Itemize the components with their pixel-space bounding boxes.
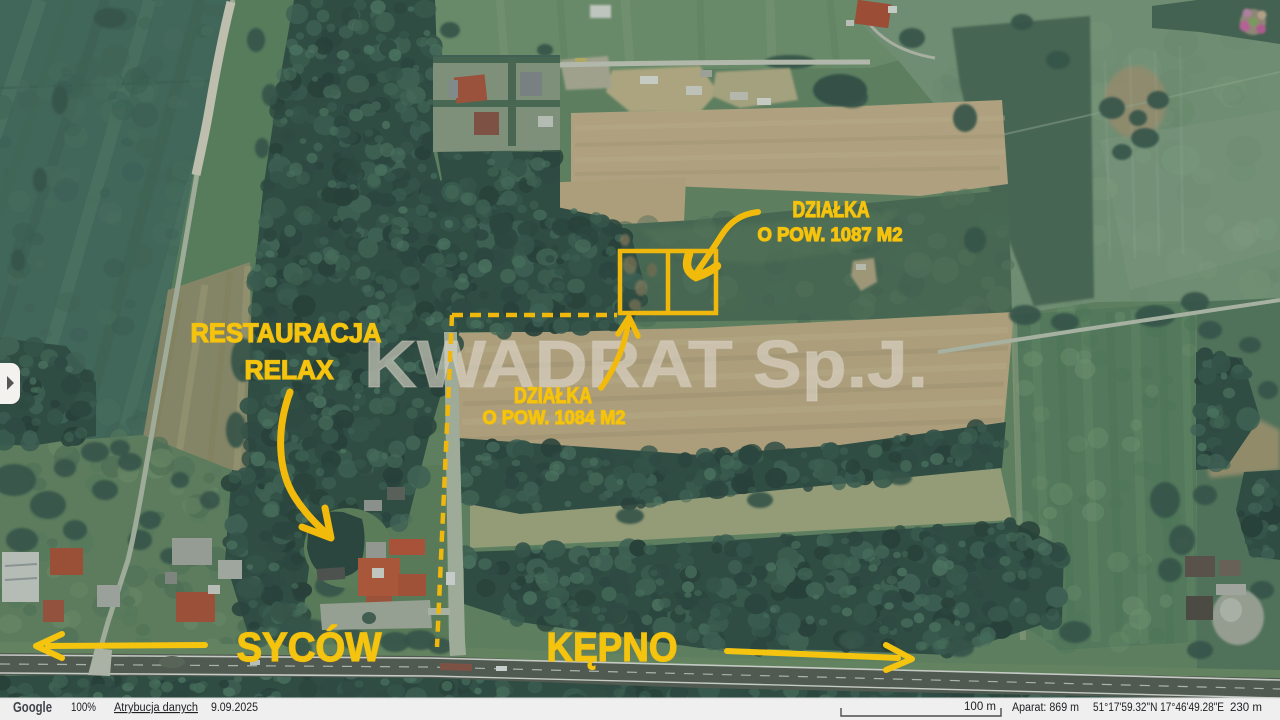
svg-text:RESTAURACJA: RESTAURACJA	[191, 318, 382, 348]
svg-text:O POW. 1084 M2: O POW. 1084 M2	[483, 407, 626, 429]
svg-text:DZIAŁKA: DZIAŁKA	[793, 197, 870, 222]
svg-text:Google: Google	[13, 700, 52, 716]
svg-text:9.09.2025: 9.09.2025	[211, 702, 258, 714]
svg-text:DZIAŁKA: DZIAŁKA	[514, 383, 592, 408]
svg-text:O POW. 1087 M2: O POW. 1087 M2	[758, 224, 903, 246]
svg-text:SYCÓW: SYCÓW	[237, 624, 382, 670]
svg-text:KĘPNO: KĘPNO	[547, 624, 678, 670]
svg-text:230 m: 230 m	[1230, 702, 1262, 714]
svg-text:51°17'59.32"N 17°46'49.28"E: 51°17'59.32"N 17°46'49.28"E	[1093, 702, 1224, 714]
svg-text:RELAX: RELAX	[245, 355, 334, 385]
svg-text:100%: 100%	[71, 702, 96, 714]
svg-text:Atrybucja danych: Atrybucja danych	[114, 702, 198, 714]
svg-text:Aparat: 869 m: Aparat: 869 m	[1012, 702, 1079, 714]
svg-text:100 m: 100 m	[964, 701, 996, 713]
